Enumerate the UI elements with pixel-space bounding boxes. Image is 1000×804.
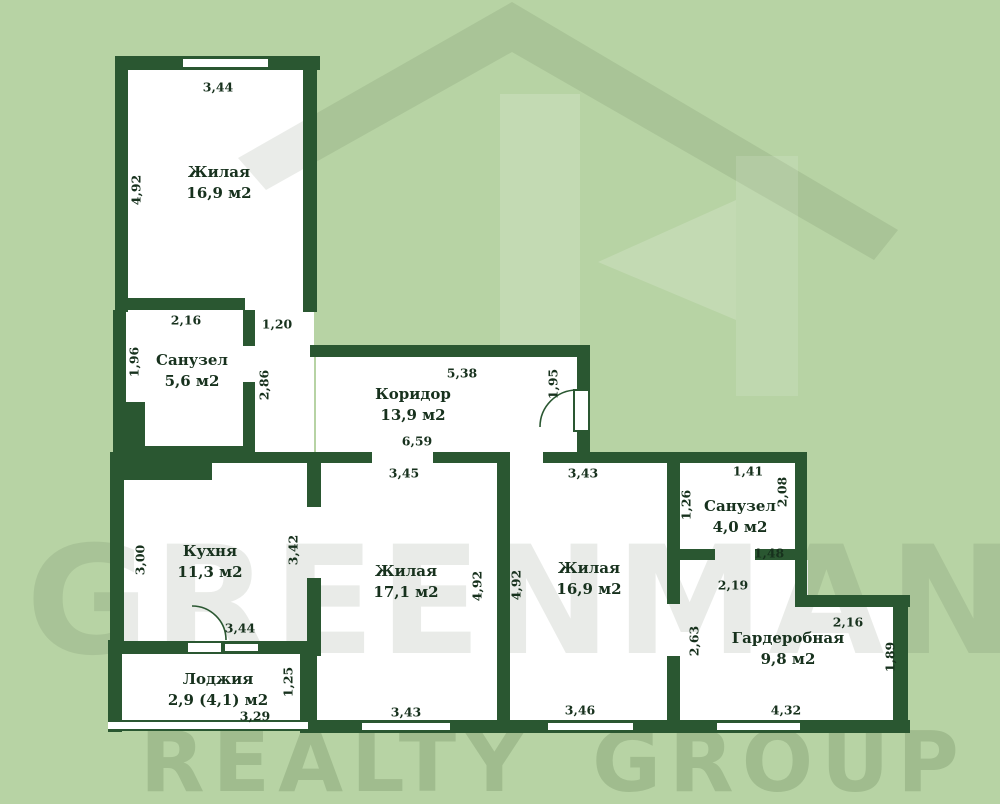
room-label-kitchen: Кухня11,3 м2	[177, 541, 242, 583]
dimension-label: 4,92	[509, 570, 524, 600]
dimension-label: 2,08	[775, 477, 790, 507]
dimension-label: 4,32	[771, 703, 801, 718]
dimension-label: 3,44	[203, 80, 233, 95]
dimension-label: 1,95	[546, 369, 561, 399]
room-label-living-right: Жилая16,9 м2	[556, 558, 621, 600]
room-label-bathroom-2: Санузел4,0 м2	[704, 496, 776, 538]
dimension-label: 3,43	[568, 466, 598, 481]
dimension-label: 1,25	[281, 667, 296, 697]
room-area: 9,8 м2	[732, 649, 844, 670]
dimension-label: 3,44	[225, 621, 255, 636]
room-area: 4,0 м2	[704, 517, 776, 538]
dimension-label: 2,16	[833, 615, 863, 630]
dimension-label: 2,63	[687, 626, 702, 656]
room-label-living-top: Жилая16,9 м2	[186, 162, 251, 204]
room-name: Жилая	[556, 558, 621, 579]
room-name: Санузел	[156, 350, 228, 371]
dimension-label: 3,43	[391, 705, 421, 720]
dimension-label: 5,38	[447, 366, 477, 381]
room-area: 16,9 м2	[186, 183, 251, 204]
room-label-living-mid: Жилая17,1 м2	[373, 561, 438, 603]
dimension-label: 3,46	[565, 703, 595, 718]
dimension-label: 1,89	[883, 642, 898, 672]
room-label-loggia: Лоджия2,9 (4,1) м2	[168, 669, 268, 711]
room-area: 17,1 м2	[373, 582, 438, 603]
room-area: 16,9 м2	[556, 579, 621, 600]
dimension-label: 1,20	[262, 317, 292, 332]
room-label-wardrobe: Гардеробная9,8 м2	[732, 628, 844, 670]
room-area: 11,3 м2	[177, 562, 242, 583]
labels-layer: Жилая16,9 м2Санузел5,6 м2Коридор13,9 м2К…	[0, 0, 1000, 804]
dimension-label: 3,42	[286, 535, 301, 565]
room-area: 5,6 м2	[156, 371, 228, 392]
dimension-label: 2,86	[257, 370, 272, 400]
room-name: Лоджия	[168, 669, 268, 690]
dimension-label: 1,41	[733, 464, 763, 479]
room-label-corridor: Коридор13,9 м2	[375, 384, 451, 426]
dimension-label: 1,48	[754, 546, 784, 561]
floor-plan-page: REALTY GROUP GREENMAN Жилая16,9 м2Санузе…	[0, 0, 1000, 804]
dimension-label: 6,59	[402, 434, 432, 449]
dimension-label: 3,29	[240, 709, 270, 724]
room-area: 13,9 м2	[375, 405, 451, 426]
room-name: Санузел	[704, 496, 776, 517]
dimension-label: 3,45	[389, 466, 419, 481]
room-name: Жилая	[373, 561, 438, 582]
room-name: Коридор	[375, 384, 451, 405]
dimension-label: 4,92	[470, 571, 485, 601]
dimension-label: 1,26	[679, 490, 694, 520]
dimension-label: 2,19	[718, 578, 748, 593]
dimension-label: 3,00	[133, 545, 148, 575]
dimension-label: 2,16	[171, 313, 201, 328]
room-name: Жилая	[186, 162, 251, 183]
room-label-bathroom-1: Санузел5,6 м2	[156, 350, 228, 392]
dimension-label: 4,92	[129, 175, 144, 205]
dimension-label: 1,96	[127, 347, 142, 377]
room-name: Гардеробная	[732, 628, 844, 649]
room-name: Кухня	[177, 541, 242, 562]
